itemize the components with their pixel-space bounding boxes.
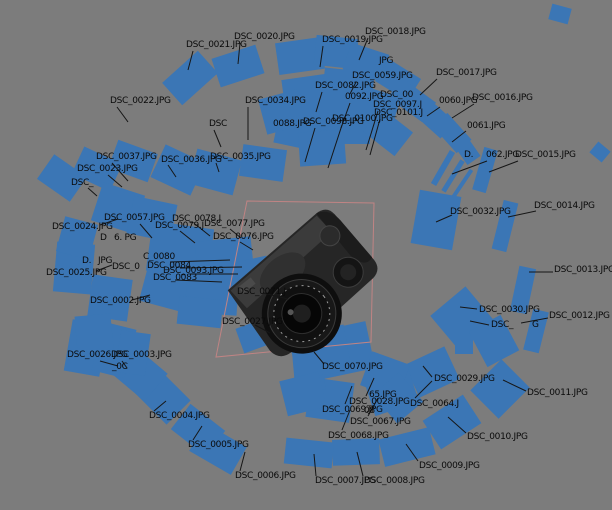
camera-label: DSC_0013.JPG	[554, 265, 612, 275]
camera-label: DSC_0020.JPG	[234, 32, 295, 42]
camera-label: DSC_0068.JPG	[328, 431, 389, 441]
camera-label: DSC_0002.JPG	[90, 296, 151, 306]
camera-label: DSC_0059.JPG	[352, 71, 413, 81]
camera-label: DSC_0004.JPG	[149, 411, 210, 421]
camera-plane[interactable]	[177, 296, 224, 328]
camera-label: DSC_0024.JPG	[52, 222, 113, 232]
camera-label: DSC_0079.J	[155, 221, 204, 231]
camera-label: DSC_00	[380, 90, 413, 100]
camera-label: DSC_0011.JPG	[527, 388, 588, 398]
camera-label: DSC_0030.JPG	[479, 305, 540, 315]
camera-label: DSC_0070.JPG	[322, 362, 383, 372]
camera-plane[interactable]	[284, 438, 334, 469]
camera-label: _0C	[112, 362, 128, 372]
camera-plane[interactable]	[239, 144, 287, 182]
camera-label: DSC_0005.JPG	[188, 440, 249, 450]
camera-label: DSC_0023.JPG	[77, 164, 138, 174]
camera-label: DSC_0025.JPG	[46, 268, 107, 278]
camera-label: DSC_0077.JPG	[204, 219, 265, 229]
camera-label: 6. PG	[114, 233, 136, 243]
camera-label: DSC	[209, 119, 227, 129]
camera-label: DSC_0035.JPG	[210, 152, 271, 162]
camera-label: DSC_0098.JPG	[303, 117, 364, 127]
camera-label: DSC_0082.JPG	[315, 81, 376, 91]
camera-label: DSC_0006.JPG	[235, 471, 296, 481]
camera-label: DSC_0	[112, 262, 140, 272]
camera-label: DSC_0007.JPG	[315, 476, 376, 486]
camera-label: D.	[82, 256, 91, 266]
camera-plane[interactable]	[332, 438, 380, 466]
camera-label: DSC_0032.JPG	[450, 207, 511, 217]
camera-label: DSC_0015.JPG	[515, 150, 576, 160]
camera-label: DSC_0010.JPG	[467, 432, 528, 442]
camera-label: DSC_0009.JPG	[419, 461, 480, 471]
camera-label: DSC_0019.JPG	[322, 35, 383, 45]
camera-label: DSC_0037.JPG	[96, 152, 157, 162]
camera-label: DSC_	[71, 178, 93, 188]
camera-label: D	[100, 233, 107, 243]
camera-label: 0061.JPG	[467, 121, 505, 131]
camera-label: G	[532, 320, 539, 330]
camera-plane[interactable]	[74, 313, 113, 352]
camera-label: DSC_0016.JPG	[472, 93, 533, 103]
camera-label: DSC_0071.J	[237, 287, 286, 297]
camera-label: D.	[464, 150, 473, 160]
camera-label: 0060.JPG	[439, 96, 477, 106]
camera-label: DSC_0029.JPG	[434, 374, 495, 384]
camera-label: DSC_0017.JPG	[436, 68, 497, 78]
camera-label: DSC_0076.JPG	[213, 232, 274, 242]
camera-label: DSC_0012.JPG	[549, 311, 610, 321]
camera-label: DSC_0083	[153, 273, 197, 283]
camera-label: DSC_0022.JPG	[110, 96, 171, 106]
camera-label: DSC_0064.J	[410, 399, 459, 409]
camera-label: DSC_0067.JPG	[350, 417, 411, 427]
camera-plane[interactable]	[455, 336, 473, 354]
camera-label: DSC_0069.JPG	[322, 405, 383, 415]
camera-label: DSC_0003.JPG	[111, 350, 172, 360]
camera-label: DSC_0034.JPG	[245, 96, 306, 106]
camera-label: JPG	[98, 256, 112, 266]
camera-label: JPG	[379, 56, 393, 66]
camera-label: DSC_	[491, 320, 513, 330]
model-3d-view[interactable]: DSC_0021.JPGDSC_0020.JPGDSC_0018.JPGDSC_…	[0, 0, 612, 510]
camera-label: DSC_0014.JPG	[534, 201, 595, 211]
camera-label: DSC_0027.JPG	[222, 317, 283, 327]
